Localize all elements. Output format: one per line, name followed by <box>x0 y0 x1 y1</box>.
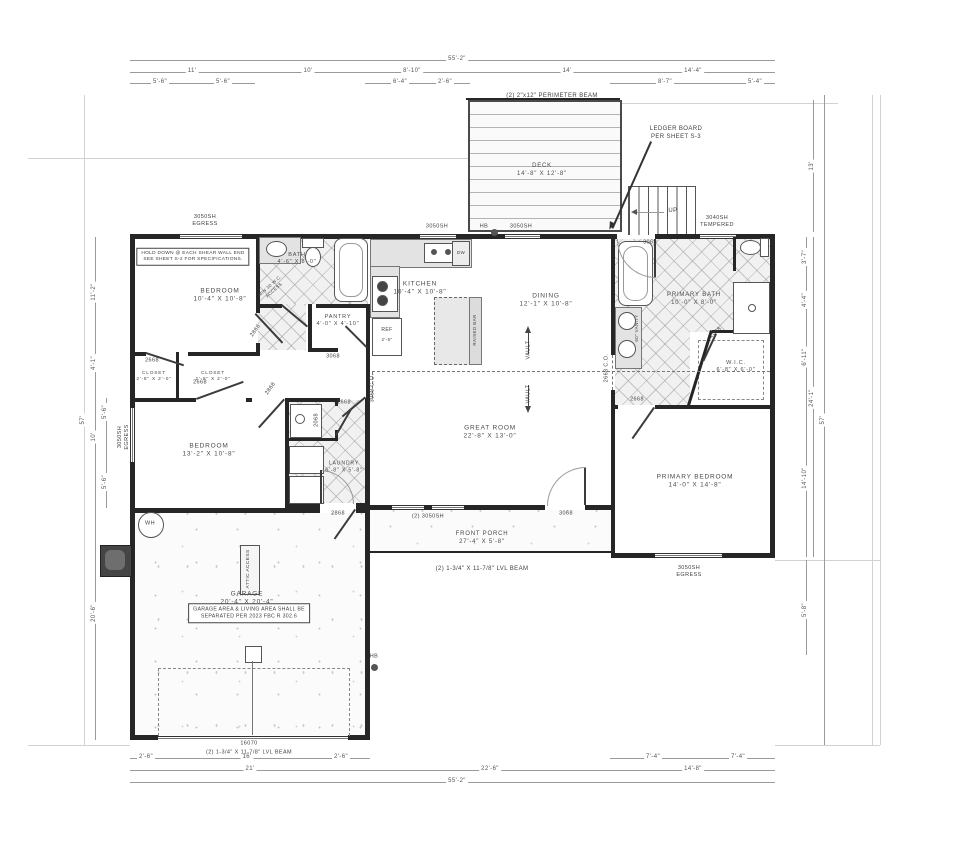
wall-segment <box>246 398 252 402</box>
wall-segment <box>286 398 340 402</box>
dim: 22'-6" <box>479 766 501 774</box>
door-leaf <box>345 326 367 348</box>
burner <box>377 295 388 306</box>
garage-door-tag: 16070 <box>240 740 257 747</box>
hose-bib-tag: HB <box>370 653 378 660</box>
window <box>655 553 722 558</box>
room-label-kitchen: KITCHEN 10'-4" X 10'-8" <box>393 281 446 298</box>
window <box>505 234 540 239</box>
dim: 14'-8" <box>682 766 704 774</box>
wall-segment <box>611 405 618 409</box>
note-perimeter-beam: (2) 2"x12" PERIMETER BEAM <box>506 93 598 101</box>
hose-bib-symbol <box>371 664 378 671</box>
extension-line <box>872 95 873 745</box>
shower-drain <box>748 304 756 312</box>
room-label-closet-1: CLOSET 2'-8" X 2'-0" <box>136 371 171 383</box>
dim-line <box>130 72 775 73</box>
dim: 3'-7" <box>802 248 810 266</box>
extension-line <box>775 745 880 746</box>
dim: 14'-10" <box>802 465 810 490</box>
door-tag: 3068 <box>559 510 573 517</box>
dim-overall-top: 55'-2" <box>446 56 468 64</box>
opening-tag: 3068 C.O. <box>369 374 376 403</box>
stair-arrow-head <box>631 209 637 215</box>
room-label-front-porch: FRONT PORCH 27'-4" X 5'-8" <box>456 531 509 547</box>
wall-segment <box>130 398 196 402</box>
garage-door-track <box>158 668 350 736</box>
primary-toilet-bowl <box>740 240 761 255</box>
window-tag: 3050SH EGRESS <box>192 214 217 228</box>
dim: 5'-6" <box>102 403 110 421</box>
door-leaf <box>258 399 285 428</box>
wall-segment <box>130 735 158 740</box>
note-garage-separation: GARAGE AREA & LIVING AREA SHALL BE SEPAR… <box>188 603 310 623</box>
dim: 14'-4" <box>682 68 704 76</box>
wall-segment <box>368 505 392 510</box>
floor-plan-drawing: 55'-2"11'10'8'-10"14'14'-4"5'-6"5'-6"6'-… <box>0 0 957 846</box>
opening-tag: 2668 C.O. <box>603 354 610 383</box>
room-label-deck: DECK 14'-8" X 12'-8" <box>517 163 567 179</box>
wall-segment <box>611 505 615 557</box>
room-label-primary-bath: PRIMARY BATH 10'-0" X 8'-0" <box>667 292 721 308</box>
dim: 6'-11" <box>802 346 810 367</box>
attic-access-label: ATTIC ACCESS <box>246 549 252 588</box>
dim: 21' <box>243 766 256 774</box>
porch-edge <box>370 551 611 553</box>
wall-segment <box>308 348 338 352</box>
dim-overall-left: 57' <box>80 413 88 426</box>
room-label-bedroom-2: BEDROOM 13'-2" X 10'-8" <box>182 443 235 460</box>
door-tag: 2668 <box>145 357 159 364</box>
dim: 10' <box>91 430 99 443</box>
dim-line <box>130 770 775 771</box>
door-tag: 2668 <box>337 399 351 406</box>
vault-label: VAULT <box>525 341 532 360</box>
room-label-laundry: LAUNDRY 6'-8" X 5'-8" <box>325 460 362 474</box>
room-label-pantry: PANTRY 4'-0" X 4'-10" <box>317 314 360 328</box>
wall-segment <box>130 508 135 740</box>
window <box>180 234 242 239</box>
dim: 7'-4" <box>729 754 747 762</box>
wall-segment <box>348 735 370 740</box>
note-garage-beam: (2) 1-3/4" X 11-7/8" LVL BEAM <box>206 749 292 756</box>
primary-sink <box>618 340 636 358</box>
dim-line <box>365 83 470 84</box>
burner <box>377 281 388 292</box>
window-tag: (2) 3050SH <box>412 513 444 520</box>
dim: 13' <box>809 159 817 172</box>
dim: 20'-6" <box>91 602 99 624</box>
wall-segment <box>365 398 370 508</box>
door-tag: 3068 <box>326 353 340 360</box>
deck-stairs <box>628 186 696 235</box>
dim: 4'-1" <box>91 354 99 372</box>
wall-segment <box>130 234 135 408</box>
note-ledger-board: LEDGER BOARD PER SHEET S-3 <box>650 126 702 142</box>
dishwasher-label: DW <box>457 250 465 256</box>
room-label-primary-bedroom: PRIMARY BEDROOM 14'-0" X 14'-8" <box>657 474 734 491</box>
wall-segment <box>188 352 256 356</box>
dim: 5'-4" <box>746 79 764 87</box>
fridge-label: REF <box>381 327 392 334</box>
window <box>432 505 464 510</box>
vault-line <box>372 371 770 373</box>
door-tag: 2068 <box>313 413 320 427</box>
dim: 10' <box>301 68 314 76</box>
dim-line <box>95 237 96 508</box>
water-heater-label: WH <box>145 520 155 527</box>
room-label-dining: DINING 12'-1" X 10'-8" <box>519 293 572 310</box>
dim: 2'-6" <box>137 754 155 762</box>
door-leaf <box>632 407 655 439</box>
primary-toilet-tank <box>760 238 769 257</box>
stair-arrow <box>636 212 664 213</box>
wall-segment <box>316 304 370 308</box>
bathtub-inner <box>339 243 363 297</box>
raised-bar-label: RAISED BAR <box>472 314 478 345</box>
opener-rail <box>252 661 253 735</box>
dim-line <box>130 83 255 84</box>
dim-line <box>95 508 96 740</box>
vault-arrow-up-head <box>525 326 531 333</box>
window-tag: 3050SH EGRESS <box>676 565 701 579</box>
extension-line <box>618 103 838 104</box>
hvac-detail <box>295 414 305 424</box>
window <box>700 234 736 239</box>
dim-overall-right: 57' <box>820 413 828 426</box>
dim: 8'-10" <box>401 68 423 76</box>
fridge-dim: 2'-6" <box>382 337 393 343</box>
note-hold-down: HOLD DOWN @ EACH SHEAR WALL END SEE SHEE… <box>136 248 249 266</box>
front-door-swing <box>547 467 586 506</box>
wall-segment <box>256 343 260 356</box>
sink-drain <box>445 249 451 255</box>
window <box>392 505 424 510</box>
wall-segment <box>424 505 432 510</box>
vault-label: VAULT <box>525 385 532 404</box>
dim: 11' <box>186 68 199 76</box>
dim: 6'-4" <box>391 79 409 87</box>
laundry-door-leaf <box>320 470 322 503</box>
dim-line <box>806 237 807 557</box>
window-tag: 3040SH TEMPERED <box>700 215 734 229</box>
dim: 5'-6" <box>214 79 232 87</box>
window-tag: 3050SH <box>426 223 448 230</box>
room-label-closet-2: CLOSET 2'-8" X 2'-0" <box>195 371 230 383</box>
washer <box>289 476 324 504</box>
garage-door-opening <box>158 736 348 740</box>
hose-bib-tag: HB <box>480 223 488 230</box>
extension-line <box>880 95 881 745</box>
extension-line <box>28 158 468 159</box>
dim: 4'-4" <box>802 291 810 309</box>
wall-segment <box>464 505 545 510</box>
wall-segment <box>770 234 775 558</box>
dim: 7'-4" <box>644 754 662 762</box>
door-tag: 3068 <box>643 239 657 246</box>
wall-segment <box>285 503 320 513</box>
extension-line <box>775 560 880 561</box>
window-tag: 3050SH EGRESS <box>117 424 131 449</box>
door-tag: 2868 <box>331 510 345 517</box>
dim: 8'-7" <box>656 79 674 87</box>
wall-segment <box>256 304 282 308</box>
vault-arrow-down-head <box>525 406 531 413</box>
electrical-panel-inner <box>105 550 125 570</box>
wall-segment <box>365 508 370 740</box>
dryer <box>289 446 324 474</box>
door-tag: 2868 <box>264 381 278 396</box>
vanity-label: 60" VANITY <box>634 314 640 341</box>
wall-segment <box>308 304 312 352</box>
dim: 5'-8" <box>802 601 810 619</box>
note-porch-beam: (2) 1-3/4" X 11-7/8" LVL BEAM <box>436 566 529 574</box>
room-label-bedroom-1: BEDROOM 10'-4" X 10'-8" <box>193 288 246 305</box>
dim: 24'-1" <box>809 387 817 409</box>
wall-segment <box>733 237 736 271</box>
wall-segment <box>540 234 617 239</box>
wall-segment <box>130 462 135 510</box>
room-label-bath: BATH 4'-6" X 8'-0" <box>277 252 316 266</box>
garage-door-opener <box>245 646 262 663</box>
dim: 11'-2" <box>91 281 99 302</box>
hose-bib-symbol <box>491 229 498 236</box>
door-tag: 2668 <box>630 396 644 403</box>
dim: 2'-6" <box>436 79 454 87</box>
dim-line <box>610 758 775 759</box>
dim: 5'-6" <box>102 473 110 491</box>
wall-segment <box>722 553 775 558</box>
window-tag: 3050SH <box>510 223 532 230</box>
wall-segment <box>655 234 700 239</box>
wall-segment <box>611 553 655 558</box>
wall-segment <box>130 352 146 356</box>
dim-overall-bottom: 55'-2" <box>446 778 468 786</box>
dim: 2'-6" <box>332 754 350 762</box>
dim: 5'-6" <box>151 79 169 87</box>
wall-segment <box>287 438 338 441</box>
stair-up-label: UP <box>668 208 677 216</box>
wall-segment <box>655 405 774 409</box>
extension-line <box>28 745 130 746</box>
dim: 14' <box>560 68 573 76</box>
room-label-wic: W.I.C. 6'-8" X 6'-0" <box>716 360 755 374</box>
sink-drain <box>431 249 437 255</box>
wall-segment <box>130 234 180 239</box>
room-label-great-room: GREAT ROOM 22'-8" X 13'-0" <box>463 425 516 442</box>
wall-segment <box>176 352 179 398</box>
